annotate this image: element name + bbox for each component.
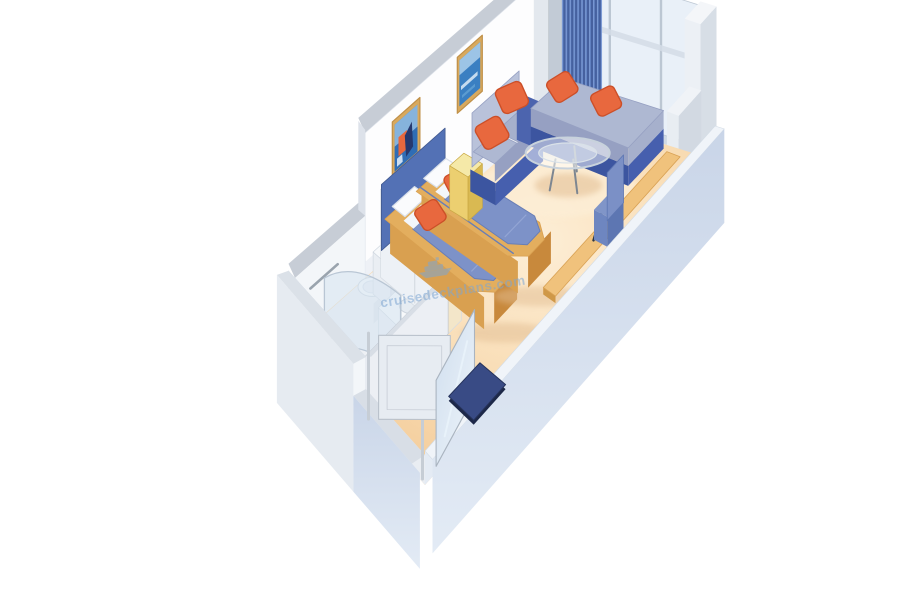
left-wall-end-cap — [358, 121, 365, 216]
ship-funnel — [435, 257, 439, 261]
cabin-cutaway-scene: cruisedeckplans.com — [0, 0, 900, 600]
table-shadow — [535, 173, 603, 197]
cabin-floorplan-illustration: cruisedeckplans.com — [0, 0, 900, 600]
table-glass-inner — [539, 143, 597, 163]
